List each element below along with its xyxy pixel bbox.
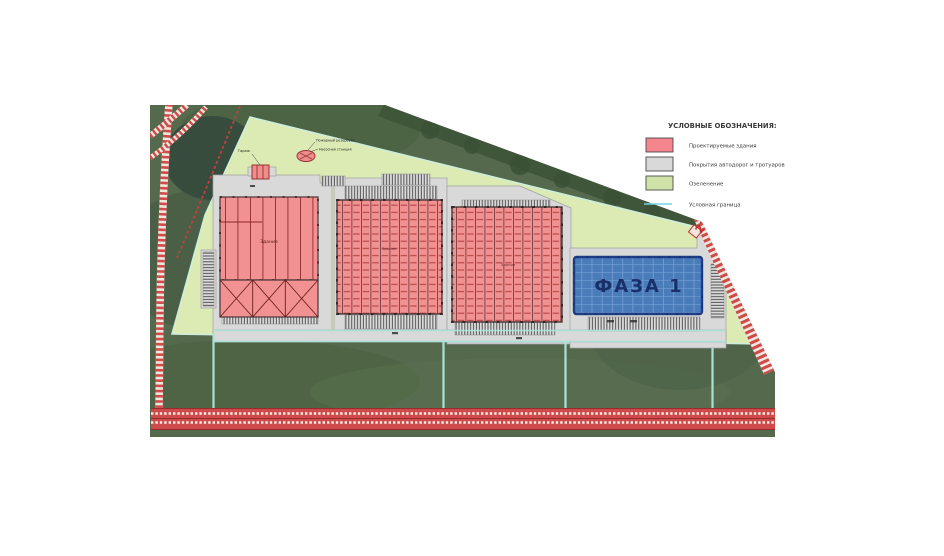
dock-row <box>222 317 318 324</box>
building-1-label: Здание <box>260 239 278 245</box>
building-2-label: Здание <box>382 246 397 251</box>
dock-row <box>588 317 700 331</box>
phase1-building: ФАЗА 1 <box>574 257 702 314</box>
legend-label-paving: Покрытия автодорог и тротуаров <box>689 163 785 169</box>
building-2: Здание <box>337 200 442 314</box>
legend-swatch-buildings <box>646 138 673 152</box>
building-3-label: Здание <box>501 262 516 267</box>
dock-column <box>203 252 214 306</box>
garage-structure <box>252 165 269 179</box>
legend-title: УСЛОВНЫЕ ОБОЗНАЧЕНИЯ: <box>668 122 777 130</box>
site-plan-page: Здание Здание Здание ФАЗА 1 <box>0 0 944 556</box>
legend: УСЛОВНЫЕ ОБОЗНАЧЕНИЯ: Проектируемые здан… <box>644 122 785 209</box>
phase1-label: ФАЗА 1 <box>594 276 683 297</box>
building-1: Здание <box>220 197 318 317</box>
annotation-pump-station: Насосная станция <box>319 148 352 152</box>
legend-swatch-paving <box>646 157 673 171</box>
legend-label-buildings: Проектируемые здания <box>689 144 756 150</box>
road-bottom <box>151 408 775 430</box>
annotation-fire-reservoir: Пожарный резервуар <box>316 139 355 143</box>
annotation-garage: Гараж <box>238 149 251 153</box>
master-plan-drawing: Здание Здание Здание ФАЗА 1 <box>0 0 944 556</box>
dock-row <box>345 315 437 329</box>
dock-row <box>345 186 437 199</box>
building-3: Здание <box>452 207 562 322</box>
dock-row <box>382 174 430 185</box>
dock-row <box>455 322 555 335</box>
dock-row <box>322 176 345 186</box>
legend-label-boundary: Условная граница <box>689 203 741 209</box>
legend-swatch-greenery <box>646 176 673 190</box>
fire-reservoir-structure <box>297 151 315 162</box>
legend-label-greenery: Озеленение <box>689 182 724 188</box>
